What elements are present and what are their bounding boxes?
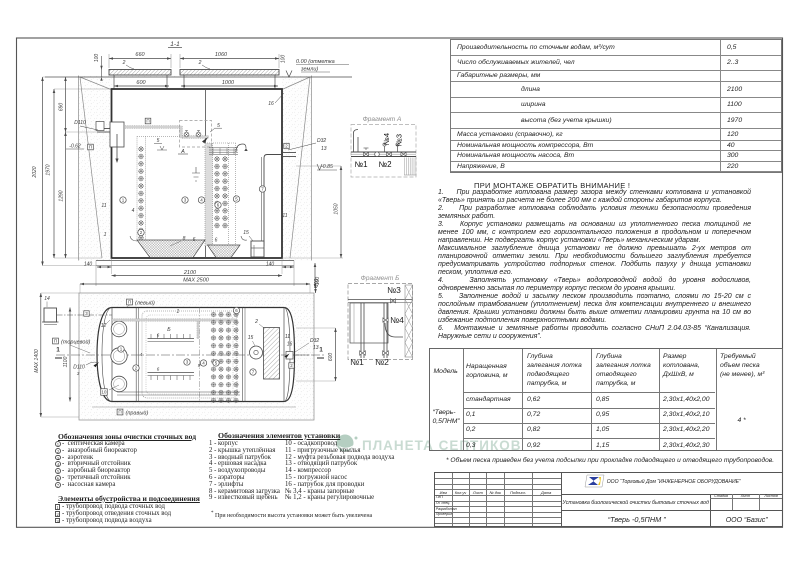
svg-text:15: 15 xyxy=(243,230,249,236)
svg-text:П: П xyxy=(146,119,149,124)
svg-text:1: 1 xyxy=(104,232,107,238)
svg-text:11: 11 xyxy=(285,334,290,340)
svg-text:3: 3 xyxy=(77,371,80,376)
svg-text:16: 16 xyxy=(287,342,293,348)
svg-text:6: 6 xyxy=(193,237,196,243)
svg-text:140: 140 xyxy=(84,262,93,268)
svg-text:1050: 1050 xyxy=(334,203,340,214)
svg-text:13: 13 xyxy=(321,146,327,152)
svg-text:6: 6 xyxy=(215,238,218,244)
svg-text:4: 4 xyxy=(132,208,135,214)
svg-text:14: 14 xyxy=(44,296,50,302)
svg-text:660: 660 xyxy=(135,52,145,58)
svg-text:1970: 1970 xyxy=(46,164,52,175)
svg-text:№1: №1 xyxy=(350,357,364,367)
svg-text:D110: D110 xyxy=(74,120,86,126)
svg-text:8: 8 xyxy=(183,236,186,242)
svg-text:земли): земли) xyxy=(300,67,318,73)
svg-text:100: 100 xyxy=(315,277,321,286)
svg-text:-0.85: -0.85 xyxy=(321,164,333,170)
svg-text:№2: №2 xyxy=(378,160,392,169)
svg-text:MAX 2500: MAX 2500 xyxy=(183,278,210,284)
svg-text:140: 140 xyxy=(266,262,275,268)
svg-text:П: П xyxy=(89,145,92,150)
svg-text:D32: D32 xyxy=(317,138,326,144)
svg-text:Фрагмент Б: Фрагмент Б xyxy=(361,275,400,282)
svg-text:100: 100 xyxy=(94,54,100,63)
svg-text:2100: 2100 xyxy=(183,270,197,276)
svg-text:П: П xyxy=(128,300,131,305)
svg-text:D110: D110 xyxy=(73,365,85,371)
svg-text:№3: №3 xyxy=(395,134,404,146)
svg-text:5: 5 xyxy=(157,138,160,144)
svg-text:№1: №1 xyxy=(354,160,368,169)
svg-text:1290: 1290 xyxy=(59,190,65,201)
svg-text:Фрагмент А: Фрагмент А xyxy=(363,116,402,123)
svg-text:6: 6 xyxy=(157,333,160,338)
svg-text:100: 100 xyxy=(281,55,287,64)
svg-text:1100: 1100 xyxy=(63,356,69,367)
svg-text:П: П xyxy=(54,339,57,344)
svg-text:2020: 2020 xyxy=(32,166,38,178)
svg-text:1: 1 xyxy=(56,347,60,354)
svg-text:600: 600 xyxy=(136,80,146,86)
svg-text:1: 1 xyxy=(319,347,323,354)
svg-text:1: 1 xyxy=(177,309,180,315)
svg-text:-0.62: -0.62 xyxy=(69,144,81,150)
svg-text:0.00 (отметка: 0.00 (отметка xyxy=(296,59,335,65)
svg-text:11: 11 xyxy=(101,203,106,209)
svg-text:2: 2 xyxy=(198,60,202,66)
svg-text:2: 2 xyxy=(122,60,126,66)
svg-text:1060: 1060 xyxy=(215,52,228,58)
svg-text:(левый): (левый) xyxy=(135,300,155,307)
svg-text:11: 11 xyxy=(282,213,287,219)
svg-text:16: 16 xyxy=(268,101,274,107)
svg-text:П: П xyxy=(118,410,121,415)
svg-text:1-1: 1-1 xyxy=(170,41,180,48)
svg-text:600: 600 xyxy=(328,353,334,362)
svg-text:№4: №4 xyxy=(382,133,391,145)
svg-text:10: 10 xyxy=(102,390,107,395)
svg-text:MAX 1400: MAX 1400 xyxy=(34,349,40,373)
svg-text:13: 13 xyxy=(313,345,319,351)
svg-text:690: 690 xyxy=(59,103,65,112)
svg-text:12: 12 xyxy=(101,323,107,329)
svg-text:4: 4 xyxy=(140,352,143,358)
svg-text:(правый): (правый) xyxy=(126,410,149,417)
svg-text:№4: №4 xyxy=(390,315,404,325)
svg-text:9: 9 xyxy=(198,363,201,369)
svg-text:№3: №3 xyxy=(387,285,401,295)
svg-text:№2: №2 xyxy=(375,357,389,367)
svg-text:(торцевой): (торцевой) xyxy=(61,339,91,346)
svg-text:1000: 1000 xyxy=(222,80,235,86)
svg-text:15: 15 xyxy=(248,335,254,341)
svg-text:6: 6 xyxy=(157,367,160,372)
svg-text:2: 2 xyxy=(254,319,258,325)
svg-text:D32: D32 xyxy=(310,338,319,344)
